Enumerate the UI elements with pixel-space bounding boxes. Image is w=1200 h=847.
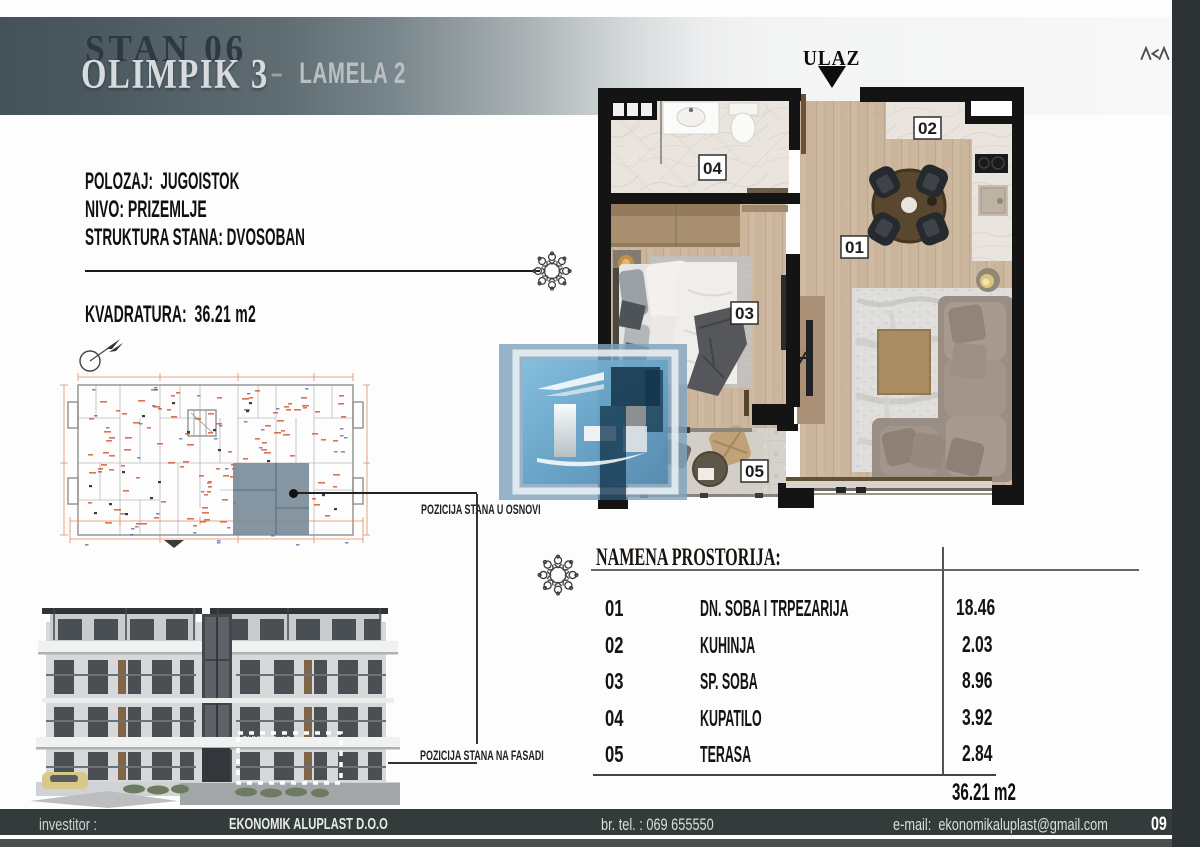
svg-text:OLIMPIK 3 - L2: OLIMPIK 3 - L2 (242, 736, 290, 743)
svg-text:01: 01 (845, 238, 864, 257)
svg-text:03: 03 (735, 304, 754, 323)
svg-text:05: 05 (745, 462, 764, 481)
svg-text:04: 04 (703, 159, 723, 178)
svg-text:02: 02 (918, 119, 937, 138)
